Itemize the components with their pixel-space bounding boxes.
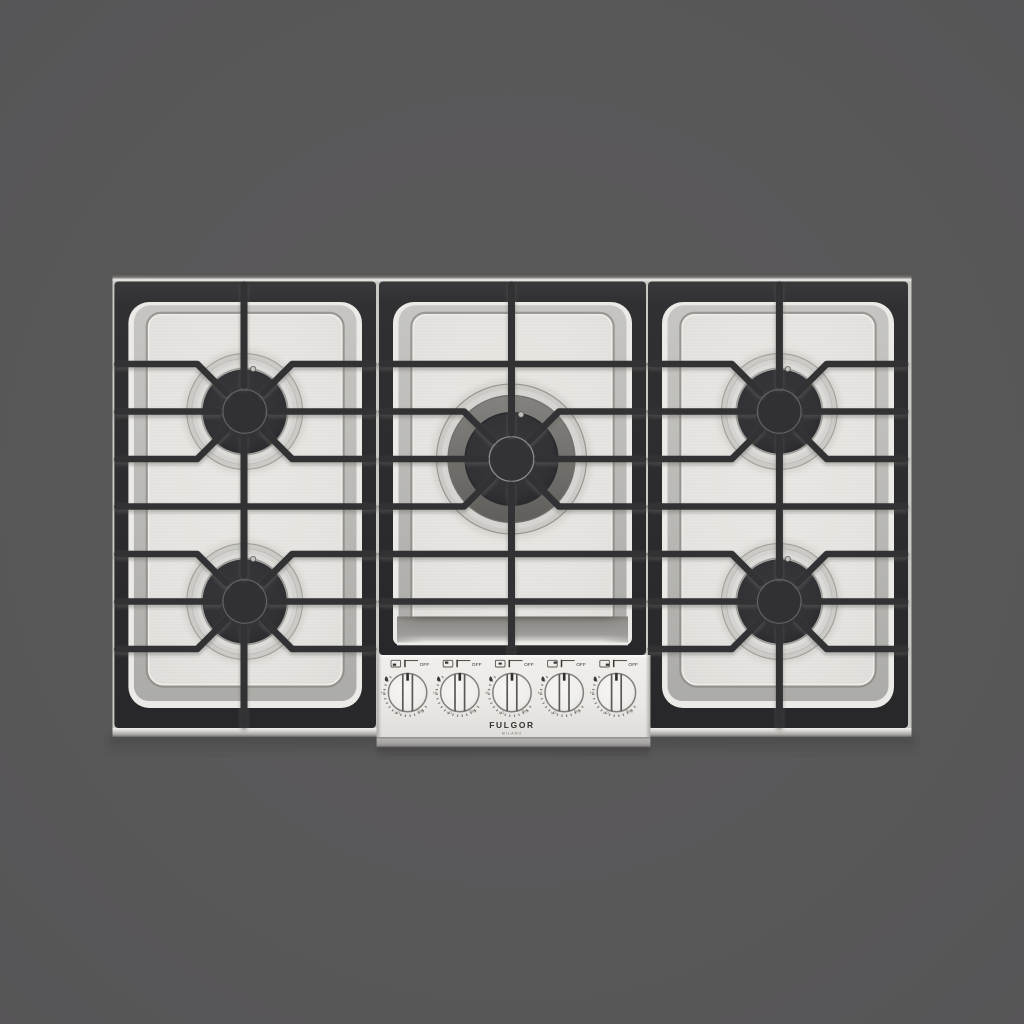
svg-text:OFF: OFF xyxy=(472,662,482,668)
svg-text:FULGOR: FULGOR xyxy=(489,720,535,730)
svg-text:OFF: OFF xyxy=(628,662,638,668)
svg-text:LO: LO xyxy=(603,710,608,715)
svg-text:HI: HI xyxy=(381,690,385,695)
svg-text:MILANO: MILANO xyxy=(502,731,523,735)
svg-text:HI: HI xyxy=(590,690,594,695)
svg-text:OFF: OFF xyxy=(420,662,430,668)
svg-text:LO: LO xyxy=(395,710,400,715)
svg-text:HI: HI xyxy=(538,690,542,695)
svg-text:LO: LO xyxy=(551,710,556,715)
svg-text:LO: LO xyxy=(447,710,452,715)
svg-text:HI: HI xyxy=(486,690,490,695)
svg-text:LO: LO xyxy=(499,710,504,715)
svg-text:HI: HI xyxy=(433,690,437,695)
svg-text:OFF: OFF xyxy=(576,662,586,668)
svg-text:OFF: OFF xyxy=(524,662,534,668)
